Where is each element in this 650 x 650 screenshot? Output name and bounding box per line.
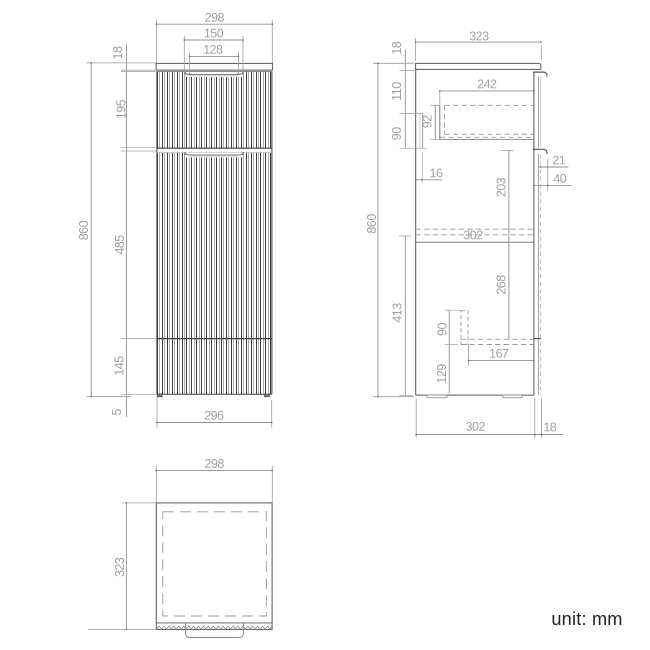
svg-text:90: 90 [436, 323, 450, 336]
svg-text:18: 18 [390, 41, 404, 54]
svg-text:195: 195 [114, 99, 128, 119]
svg-text:5: 5 [110, 409, 124, 416]
svg-text:298: 298 [205, 457, 225, 471]
svg-text:298: 298 [205, 11, 225, 25]
svg-text:110: 110 [390, 82, 404, 101]
svg-text:302: 302 [463, 228, 483, 242]
svg-text:296: 296 [204, 409, 224, 423]
svg-text:242: 242 [477, 77, 497, 91]
svg-text:413: 413 [390, 303, 404, 323]
svg-text:21: 21 [552, 153, 565, 167]
svg-text:485: 485 [113, 235, 127, 255]
svg-text:323: 323 [113, 557, 127, 577]
svg-text:unit: mm: unit: mm [551, 609, 622, 629]
svg-text:302: 302 [466, 420, 486, 434]
svg-text:268: 268 [494, 275, 508, 295]
svg-text:860: 860 [77, 220, 91, 240]
svg-text:323: 323 [469, 29, 489, 43]
svg-text:145: 145 [112, 356, 126, 376]
svg-text:92: 92 [420, 115, 434, 128]
svg-text:18: 18 [543, 420, 556, 434]
svg-text:860: 860 [365, 214, 379, 234]
svg-text:18: 18 [111, 46, 125, 59]
svg-text:128: 128 [203, 43, 223, 57]
svg-text:150: 150 [204, 26, 224, 40]
svg-text:203: 203 [494, 177, 508, 197]
svg-text:90: 90 [390, 127, 404, 140]
svg-text:40: 40 [553, 172, 566, 186]
svg-text:16: 16 [430, 166, 443, 180]
svg-text:167: 167 [489, 347, 509, 361]
svg-text:129: 129 [435, 364, 449, 384]
